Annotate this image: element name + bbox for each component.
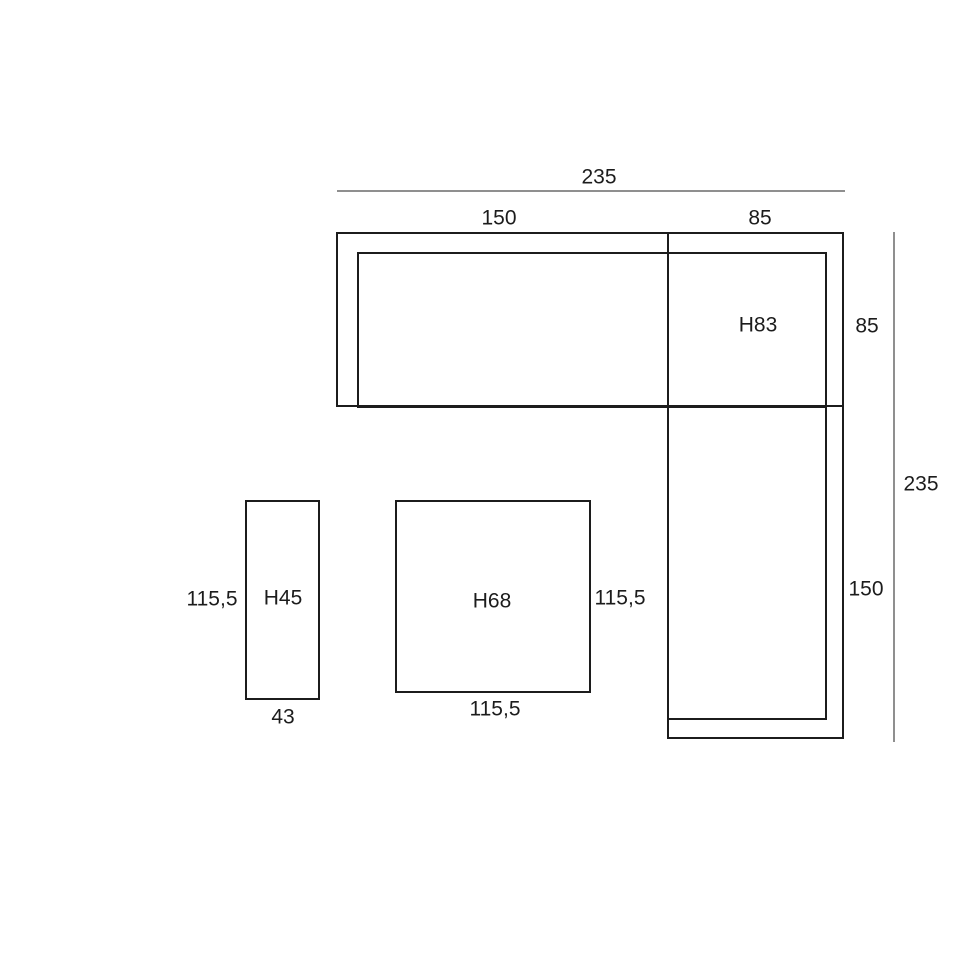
sofa-total-width-label: 235 [581, 167, 616, 188]
sofa-corner-section-width-label: 85 [748, 208, 771, 229]
table-depth-label: 115,5 [595, 588, 646, 609]
right-total-depth-dimension-line [893, 232, 895, 742]
sofa-corner-section-depth-label: 85 [855, 316, 878, 337]
top-total-width-dimension-line [337, 190, 845, 192]
bench-width-label: 43 [271, 707, 294, 728]
furniture-dimension-diagram: 235 150 85 H83 85 235 150 115,5 H45 43 H… [0, 0, 960, 960]
bench-depth-label: 115,5 [187, 589, 238, 610]
sofa-total-depth-label: 235 [903, 474, 938, 495]
table-width-label: 115,5 [470, 699, 521, 720]
sofa-left-section-width-label: 150 [481, 208, 516, 229]
table-height-label: H68 [473, 591, 512, 612]
bench-height-label: H45 [264, 588, 303, 609]
sofa-inner-chaise-rect [667, 406, 827, 720]
sofa-height-label: H83 [739, 315, 778, 336]
sofa-chaise-length-label: 150 [848, 579, 883, 600]
